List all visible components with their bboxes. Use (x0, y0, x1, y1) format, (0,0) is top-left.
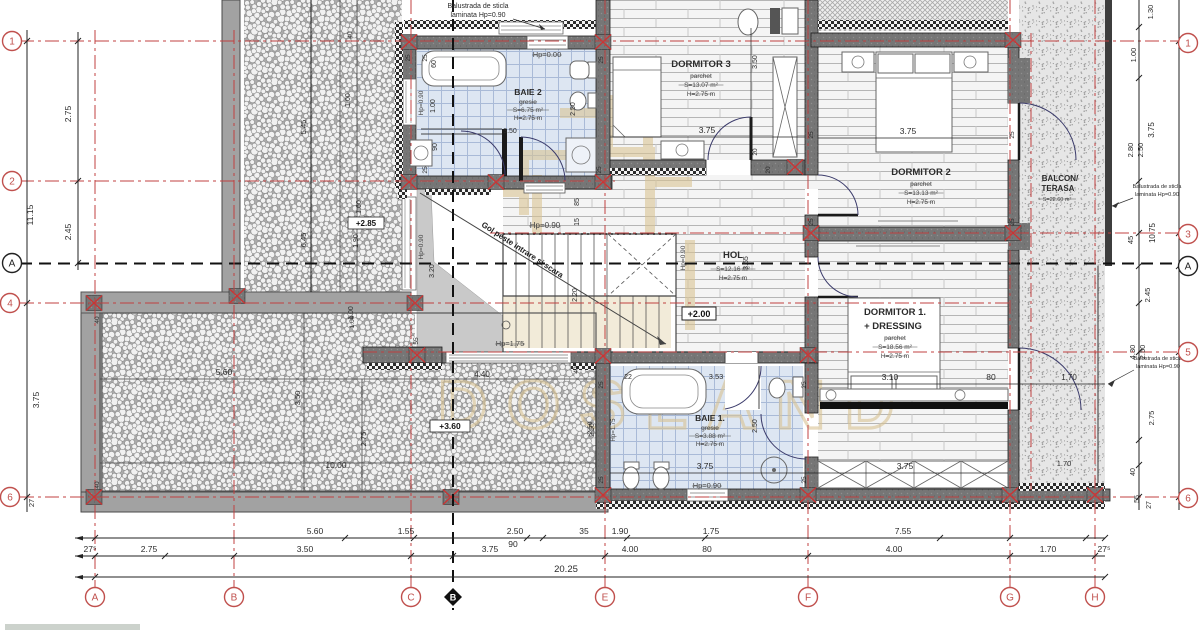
svg-text:11.15: 11.15 (25, 204, 35, 225)
svg-text:15: 15 (574, 218, 581, 226)
svg-text:BAIE 1.: BAIE 1. (695, 413, 725, 423)
svg-text:1.90: 1.90 (353, 234, 360, 248)
svg-text:40: 40 (94, 316, 101, 324)
svg-text:gresie: gresie (701, 425, 719, 432)
svg-text:laminata Hp=0.90: laminata Hp=0.90 (1135, 192, 1179, 198)
svg-text:2.50: 2.50 (1138, 345, 1147, 360)
svg-text:1.70: 1.70 (1061, 373, 1077, 382)
svg-text:25: 25 (598, 381, 605, 389)
svg-text:6: 6 (1185, 494, 1191, 505)
svg-text:Hp=0.90: Hp=0.90 (693, 481, 722, 490)
svg-text:25: 25 (598, 56, 605, 64)
svg-text:90: 90 (508, 539, 518, 549)
svg-text:Hp=1.75: Hp=1.75 (496, 339, 525, 348)
svg-text:HOL: HOL (723, 250, 743, 261)
svg-text:Balustrada de sticla: Balustrada de sticla (1133, 184, 1183, 190)
svg-text:60: 60 (431, 60, 438, 68)
svg-text:Hp=0.00: Hp=0.00 (533, 50, 562, 59)
svg-text:2: 2 (9, 177, 15, 188)
svg-text:H: H (1091, 593, 1098, 604)
svg-text:1.55: 1.55 (398, 526, 415, 536)
svg-text:2.45: 2.45 (63, 223, 73, 240)
svg-text:2.75: 2.75 (63, 105, 73, 122)
svg-text:2.50: 2.50 (1136, 143, 1145, 158)
svg-text:80: 80 (702, 544, 712, 554)
svg-text:Hp=1.75: Hp=1.75 (611, 418, 617, 442)
svg-text:S=13.13 m²: S=13.13 m² (904, 190, 939, 197)
svg-text:B: B (231, 593, 238, 604)
svg-text:27: 27 (1146, 501, 1153, 509)
svg-text:3.75: 3.75 (482, 544, 499, 554)
svg-text:+ DRESSING: + DRESSING (864, 321, 922, 332)
svg-text:5: 5 (1185, 348, 1191, 359)
svg-text:3.75: 3.75 (1147, 122, 1156, 138)
svg-text:3.75: 3.75 (900, 126, 917, 136)
svg-text:+2.00: +2.00 (688, 309, 711, 319)
svg-text:4.00: 4.00 (622, 544, 639, 554)
svg-text:F: F (805, 593, 811, 604)
svg-text:25: 25 (598, 476, 605, 484)
svg-text:10.75: 10.75 (1148, 222, 1157, 243)
svg-text:1.75: 1.75 (703, 526, 720, 536)
svg-text:1.00: 1.00 (345, 93, 352, 107)
svg-text:3.20: 3.20 (429, 264, 436, 278)
svg-text:25: 25 (801, 476, 808, 484)
svg-text:55: 55 (413, 337, 420, 345)
svg-text:35: 35 (579, 526, 589, 536)
svg-text:parchet: parchet (884, 335, 906, 342)
svg-text:1: 1 (1185, 39, 1191, 50)
svg-text:85: 85 (574, 198, 581, 206)
svg-text:25: 25 (801, 381, 808, 389)
svg-text:10.00: 10.00 (325, 460, 347, 470)
svg-text:25: 25 (808, 218, 815, 226)
svg-text:22: 22 (624, 374, 632, 381)
svg-text:25: 25 (405, 54, 412, 62)
svg-text:Hp=0.90: Hp=0.90 (530, 221, 561, 230)
svg-text:S=3.88 m²: S=3.88 m² (695, 433, 726, 440)
svg-text:B: B (450, 593, 457, 603)
svg-text:A: A (1185, 262, 1192, 273)
svg-text:gresie: gresie (519, 99, 537, 106)
svg-text:H=2.75 m: H=2.75 m (907, 199, 935, 206)
svg-text:H=2.75 m: H=2.75 m (881, 353, 909, 360)
svg-text:80: 80 (986, 372, 996, 382)
svg-text:1.60: 1.60 (356, 200, 363, 214)
svg-text:3.50: 3.50 (503, 128, 517, 135)
svg-text:25: 25 (422, 166, 429, 174)
svg-text:40: 40 (347, 31, 354, 39)
svg-text:5.60: 5.60 (216, 367, 233, 377)
svg-text:1.30: 1.30 (1146, 5, 1155, 20)
svg-text:3.50: 3.50 (752, 55, 759, 69)
svg-text:27⁵: 27⁵ (84, 544, 97, 554)
svg-text:BAIE 2: BAIE 2 (514, 87, 542, 97)
svg-text:2.80: 2.80 (1126, 143, 1135, 158)
svg-text:5.60: 5.60 (307, 526, 324, 536)
svg-text:20: 20 (765, 166, 772, 174)
svg-text:2.75: 2.75 (1147, 411, 1156, 426)
svg-text:3.10: 3.10 (882, 372, 899, 382)
svg-text:3.75: 3.75 (897, 461, 914, 471)
svg-text:6.45: 6.45 (299, 233, 308, 248)
svg-text:H=2.75 m: H=2.75 m (719, 275, 747, 282)
svg-text:2.50: 2.50 (752, 419, 759, 433)
svg-text:S=6.75 m²: S=6.75 m² (513, 107, 544, 114)
svg-text:DORMITOR 3: DORMITOR 3 (671, 59, 730, 70)
svg-text:2.50: 2.50 (507, 526, 524, 536)
svg-text:+3.60: +3.60 (439, 421, 461, 431)
svg-text:27⁵: 27⁵ (1098, 544, 1111, 554)
svg-text:27: 27 (27, 499, 36, 507)
svg-text:TERASA: TERASA (1042, 184, 1075, 193)
svg-text:Hp=0.90: Hp=0.90 (418, 90, 425, 115)
svg-text:DORMITOR 2: DORMITOR 2 (891, 167, 950, 178)
svg-text:1.70: 1.70 (1040, 544, 1057, 554)
svg-text:55: 55 (1134, 495, 1141, 503)
svg-text:3: 3 (1185, 230, 1191, 241)
svg-text:DORMITOR 1.: DORMITOR 1. (864, 307, 926, 318)
svg-text:1.90: 1.90 (612, 526, 629, 536)
svg-text:+2.85: +2.85 (356, 219, 377, 228)
svg-text:4.30: 4.30 (1128, 345, 1137, 360)
svg-text:40: 40 (573, 366, 580, 374)
svg-text:2.50: 2.50 (587, 421, 594, 434)
svg-text:4.00: 4.00 (886, 544, 903, 554)
svg-text:Hp=0.90: Hp=0.90 (680, 245, 687, 270)
svg-text:C: C (407, 593, 414, 604)
svg-text:BALCON/: BALCON/ (1042, 174, 1079, 183)
svg-text:2.50: 2.50 (570, 102, 577, 116)
svg-text:parchet: parchet (910, 181, 932, 188)
svg-text:1: 1 (9, 37, 15, 48)
svg-text:90: 90 (432, 143, 439, 151)
svg-text:S=13.07 m²: S=13.07 m² (684, 82, 719, 89)
svg-text:1.70: 1.70 (1057, 459, 1072, 468)
svg-text:7.55: 7.55 (895, 526, 912, 536)
svg-text:40: 40 (94, 481, 101, 489)
svg-text:Hp=0.90: Hp=0.90 (418, 234, 425, 259)
svg-text:3.50: 3.50 (293, 391, 302, 406)
svg-text:3.75: 3.75 (699, 125, 716, 135)
svg-text:3.50: 3.50 (297, 544, 314, 554)
svg-text:5.45: 5.45 (299, 120, 308, 135)
svg-text:3.55: 3.55 (743, 256, 750, 270)
svg-text:3.75: 3.75 (31, 391, 41, 408)
svg-text:2.20: 2.20 (572, 288, 579, 302)
svg-text:6: 6 (7, 493, 13, 504)
svg-text:E: E (602, 593, 609, 604)
svg-text:1.00: 1.00 (348, 306, 355, 320)
svg-text:H=2.75 m: H=2.75 m (687, 91, 715, 98)
svg-text:H=2.75 m: H=2.75 m (696, 441, 724, 448)
svg-text:H=2.75 m: H=2.75 m (514, 115, 542, 122)
svg-text:1.00: 1.00 (1129, 48, 1138, 63)
svg-text:25: 25 (596, 166, 603, 174)
svg-text:S=22.60 m²: S=22.60 m² (1043, 197, 1072, 203)
svg-text:25: 25 (1009, 131, 1016, 139)
svg-text:4.40: 4.40 (474, 370, 490, 379)
svg-text:laminata Hp=0.90: laminata Hp=0.90 (450, 12, 505, 19)
svg-text:A: A (9, 259, 16, 270)
svg-text:25: 25 (1009, 218, 1016, 226)
svg-text:40: 40 (1130, 468, 1137, 476)
svg-text:laminata Hp=0.90: laminata Hp=0.90 (1136, 364, 1180, 370)
svg-text:2.75: 2.75 (141, 544, 158, 554)
svg-text:A: A (92, 593, 99, 604)
svg-text:parchet: parchet (690, 73, 712, 80)
svg-text:3.53: 3.53 (709, 372, 724, 381)
svg-text:2.45: 2.45 (1143, 288, 1152, 303)
svg-text:3.75: 3.75 (697, 461, 714, 471)
svg-text:2.75: 2.75 (359, 432, 368, 447)
svg-text:25: 25 (422, 54, 429, 62)
svg-text:Balustrada de sticla: Balustrada de sticla (447, 3, 508, 10)
svg-text:45: 45 (1126, 236, 1135, 244)
svg-text:25: 25 (808, 131, 815, 139)
svg-text:20: 20 (752, 148, 759, 156)
svg-text:G: G (1006, 593, 1014, 604)
svg-text:1.00: 1.00 (430, 99, 437, 113)
svg-text:20.25: 20.25 (554, 564, 578, 575)
svg-text:4: 4 (7, 299, 13, 310)
svg-text:S=18.56 m²: S=18.56 m² (878, 344, 913, 351)
